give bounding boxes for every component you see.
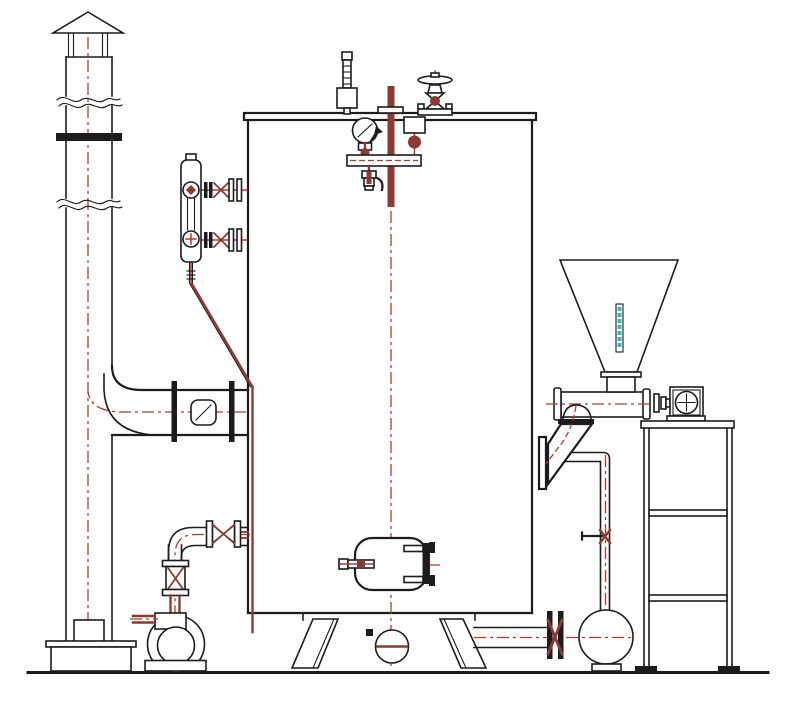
stand-top-plate: [641, 421, 734, 428]
pedestal-cap: [46, 641, 136, 647]
stack-flange: [56, 133, 122, 141]
hopper-level-strip: [616, 304, 623, 352]
cleanout-door: [74, 620, 104, 643]
blowdown-line: [192, 284, 253, 387]
probe-flange: [378, 107, 403, 113]
chimney-stack: [46, 12, 136, 671]
stand-rail-lower: [649, 595, 727, 601]
chute-wall-flange: [539, 437, 546, 489]
manhole: [338, 538, 440, 590]
screw-feeder: [546, 377, 705, 421]
fuel-hopper: [560, 260, 678, 377]
main-steam-valve: [418, 71, 452, 115]
stand-foot-right: [718, 666, 740, 671]
pedestal: [51, 647, 131, 671]
coupling: [654, 394, 670, 412]
flue-duct: [88, 366, 248, 442]
duct-flange-left: [172, 381, 178, 442]
water-level-gauge: [181, 154, 253, 632]
shutoff-valve: [408, 136, 421, 149]
bottom-drain: [366, 629, 409, 663]
feed-water-line: [130, 521, 250, 673]
valve-ball: [430, 96, 440, 106]
discharge-valve: [163, 561, 189, 596]
stand-foot-left: [635, 666, 657, 671]
manifold-drain-valve: [362, 166, 382, 190]
bottom-blowdown-valve: [547, 611, 564, 659]
pump-inlet-box: [155, 613, 186, 629]
drive-motor: [667, 387, 705, 421]
drawing-canvas: [0, 0, 800, 703]
shutoff-valve-box: [404, 117, 425, 133]
pump-base: [145, 661, 206, 672]
check-valve: [207, 521, 241, 547]
blowdown-circuit: [474, 453, 633, 672]
blowdown-pump: [579, 610, 633, 671]
rain-cap: [53, 12, 123, 33]
duct-centerline: [88, 392, 246, 412]
pressure-gauge-assembly: [347, 117, 425, 190]
hopper-neck: [607, 377, 635, 392]
manhole-swing-bolt: [339, 559, 374, 569]
duct-flange-right: [229, 381, 235, 442]
blowdown-line-edge: [190, 284, 251, 387]
damper: [191, 400, 216, 425]
equipment-stand: [635, 421, 740, 671]
stand-rail-upper: [649, 510, 727, 516]
boiler-schematic: [0, 0, 800, 703]
blowdown-pump-base: [592, 664, 621, 671]
safety-valve: [337, 52, 357, 114]
